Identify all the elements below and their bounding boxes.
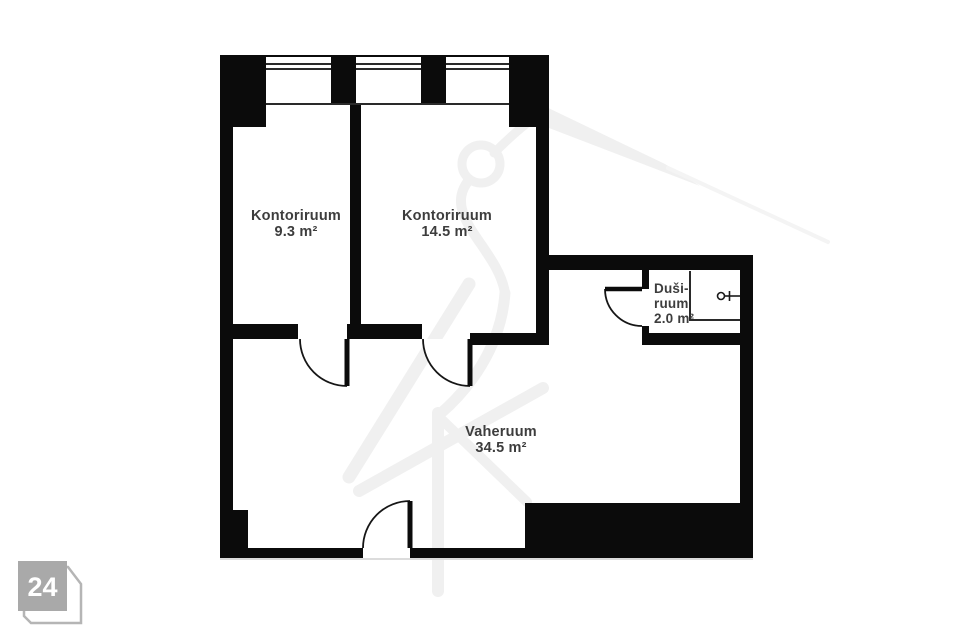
badge-number: 24: [27, 572, 57, 602]
floorplan-image: 24 Kontoriruum 9.3 m² Kontoriruum 14.5 m…: [0, 0, 960, 640]
room-area: 9.3 m²: [226, 224, 366, 240]
room-area: 2.0 m²: [654, 311, 694, 326]
logo-badge-24: 24: [18, 561, 81, 623]
room-label-office1: Kontoriruum 9.3 m²: [226, 208, 366, 240]
room-name: Vaheruum: [465, 424, 537, 440]
room-name-line1: Duši-: [654, 281, 694, 296]
shower-head-icon: [718, 291, 741, 301]
room-name: Kontoriruum: [251, 208, 341, 224]
room-label-shower: Duši- ruum 2.0 m²: [654, 281, 694, 326]
room-name: Kontoriruum: [402, 208, 492, 224]
room-name-line2: ruum: [654, 296, 694, 311]
room-area: 34.5 m²: [431, 440, 571, 456]
plan-symbols: 24: [0, 0, 960, 640]
room-area: 14.5 m²: [377, 224, 517, 240]
room-label-hall: Vaheruum 34.5 m²: [431, 424, 571, 456]
room-label-office2: Kontoriruum 14.5 m²: [377, 208, 517, 240]
